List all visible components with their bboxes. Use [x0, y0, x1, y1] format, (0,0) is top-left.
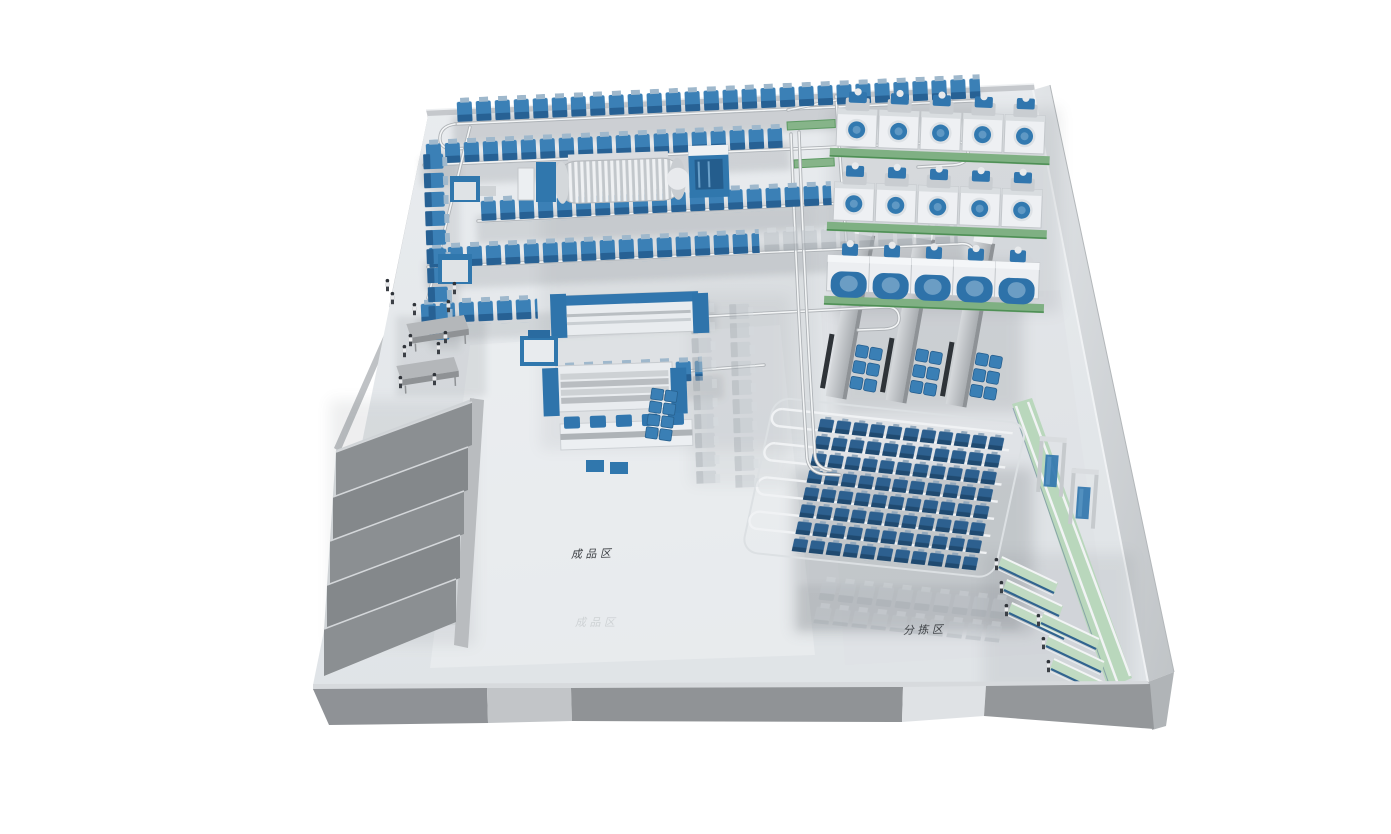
front-door-opening — [902, 686, 986, 722]
washer-side-modules — [518, 162, 556, 202]
factory-3d-render: 成品区 成品区 分拣区 — [0, 0, 1391, 834]
washer-dryer-grid — [824, 87, 1052, 313]
area-label-finished-goods: 成品区 — [571, 547, 615, 561]
area-label-finished-goods-faint: 成品区 — [575, 616, 619, 629]
press-machine — [688, 145, 730, 198]
front-wall-recess — [487, 688, 572, 723]
feeder-line — [550, 289, 709, 338]
scene-svg: 成品区 成品区 分拣区 — [0, 0, 1391, 834]
area-label-sorting: 分拣区 — [903, 623, 947, 637]
front-wall — [313, 681, 1154, 729]
